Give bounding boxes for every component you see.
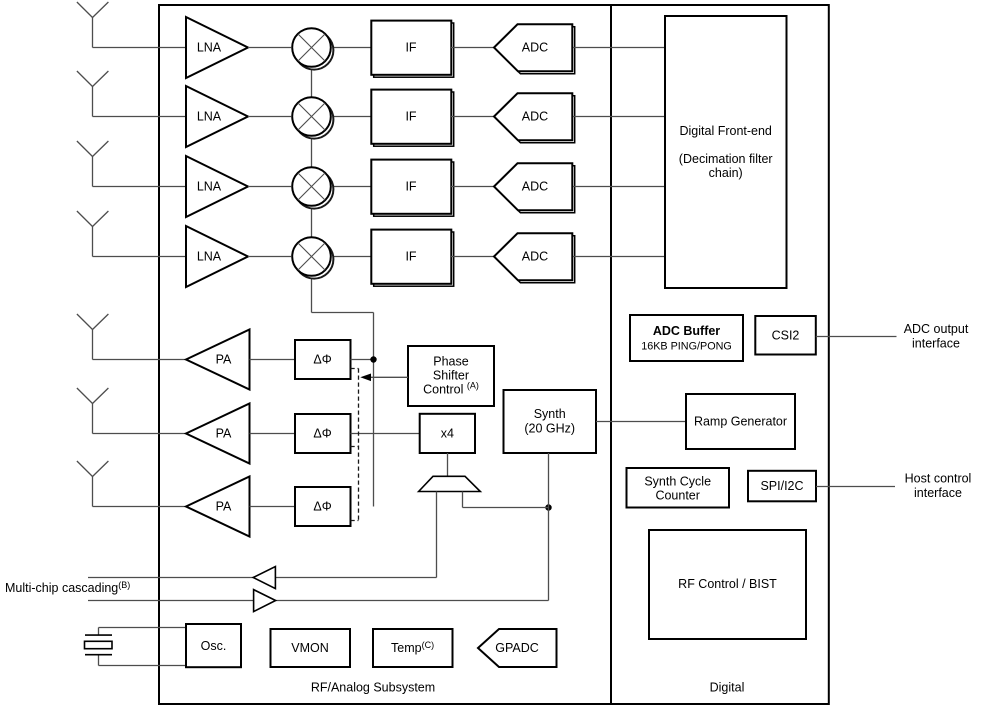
svg-text:RF Control / BIST: RF Control / BIST [678,577,777,591]
svg-text:Phase: Phase [433,355,468,369]
svg-text:x4: x4 [441,427,454,441]
svg-text:LNA: LNA [197,250,222,264]
svg-text:PA: PA [216,427,232,441]
svg-text:(Decimation filter: (Decimation filter [679,152,773,166]
svg-text:Shifter: Shifter [433,369,469,383]
svg-text:Ramp Generator: Ramp Generator [694,415,787,429]
svg-text:interface: interface [914,486,962,500]
svg-text:interface: interface [912,337,960,351]
svg-text:ADC: ADC [522,180,548,194]
svg-text:16KB PING/PONG: 16KB PING/PONG [641,341,732,353]
svg-text:GPADC: GPADC [495,641,539,655]
svg-text:Synth: Synth [534,407,566,421]
svg-text:ADC: ADC [522,41,548,55]
svg-text:(20 GHz): (20 GHz) [524,422,575,436]
svg-text:IF: IF [405,180,416,194]
svg-text:IF: IF [405,41,416,55]
svg-text:Osc.: Osc. [201,639,227,653]
svg-text:ΔΦ: ΔΦ [313,427,331,441]
svg-text:Digital: Digital [710,680,745,694]
svg-text:Digital Front-end: Digital Front-end [679,124,771,138]
svg-text:ΔΦ: ΔΦ [313,500,331,514]
svg-text:LNA: LNA [197,41,222,55]
svg-text:ADC Buffer: ADC Buffer [653,324,720,338]
svg-text:LNA: LNA [197,110,222,124]
svg-text:ADC: ADC [522,110,548,124]
svg-text:IF: IF [405,110,416,124]
svg-text:PA: PA [216,500,232,514]
svg-text:Counter: Counter [655,489,699,503]
svg-text:SPI/I2C: SPI/I2C [760,479,803,493]
svg-text:PA: PA [216,353,232,367]
svg-text:IF: IF [405,250,416,264]
svg-text:Synth Cycle: Synth Cycle [644,475,711,489]
svg-text:Host control: Host control [905,472,972,486]
svg-text:VMON: VMON [291,641,329,655]
svg-text:chain): chain) [709,166,743,180]
svg-text:Multi-chip cascading(B): Multi-chip cascading(B) [5,580,130,595]
svg-text:LNA: LNA [197,180,222,194]
svg-text:RF/Analog Subsystem: RF/Analog Subsystem [311,680,435,694]
svg-text:ΔΦ: ΔΦ [313,353,331,367]
svg-text:ADC: ADC [522,250,548,264]
svg-text:ADC output: ADC output [904,322,969,336]
svg-text:CSI2: CSI2 [772,329,800,343]
